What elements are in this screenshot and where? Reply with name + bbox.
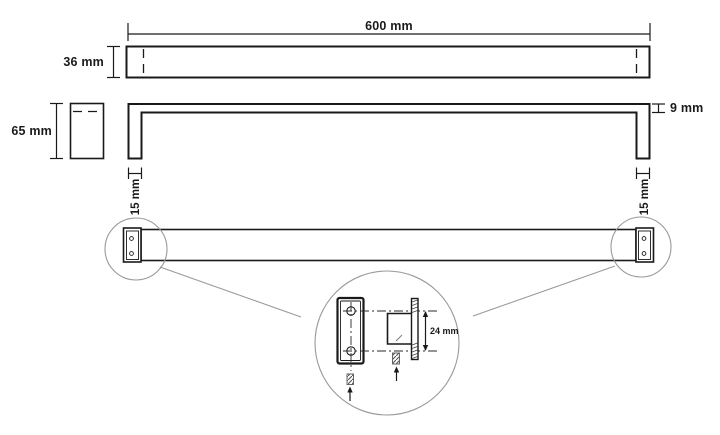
detail-view: 24 mm	[315, 271, 459, 415]
detail-bracket-side	[388, 299, 419, 360]
dimension-length: 600 mm	[128, 19, 650, 41]
leader-line-left	[160, 267, 301, 317]
technical-drawing-page: 600 mm 36 mm 65 mm	[0, 0, 720, 435]
detail-wall-plate-front	[338, 298, 364, 364]
dim-hole-spacing-label: 24 mm	[430, 326, 459, 336]
dimension-post-width-right: 15 mm	[637, 168, 652, 216]
dim-profile-height-label: 36 mm	[63, 55, 104, 69]
bar-bottom-view-tube	[141, 230, 636, 261]
bottom-view	[105, 217, 671, 317]
right-end-plate	[636, 228, 654, 262]
dimension-post-width-left: 15 mm	[129, 168, 143, 216]
leader-line-right	[473, 266, 615, 316]
top-view: 600 mm 36 mm	[63, 19, 650, 78]
dim-bracket-depth-label: 65 mm	[11, 124, 52, 138]
dim-post-width-right-label: 15 mm	[639, 179, 651, 215]
dim-length-label: 600 mm	[365, 19, 413, 33]
dimension-hole-spacing: 24 mm	[423, 311, 459, 351]
left-end-plate	[124, 228, 142, 262]
dimension-profile-height: 36 mm	[63, 47, 120, 78]
front-view: 65 mm 9 mm 15 mm 15 mm	[11, 101, 703, 215]
fixing-screw-right	[393, 353, 400, 381]
dim-bar-thickness-label: 9 mm	[670, 101, 703, 115]
dimension-bar-thickness: 9 mm	[652, 101, 703, 115]
fixing-screw-left	[347, 374, 354, 401]
dimension-bracket-depth: 65 mm	[11, 104, 63, 159]
dim-post-width-left-label: 15 mm	[130, 179, 142, 215]
bar-top-view-outline	[127, 47, 650, 78]
rail-front-outline	[129, 104, 650, 159]
towel-bar-technical-drawing: 600 mm 36 mm 65 mm	[0, 0, 720, 435]
